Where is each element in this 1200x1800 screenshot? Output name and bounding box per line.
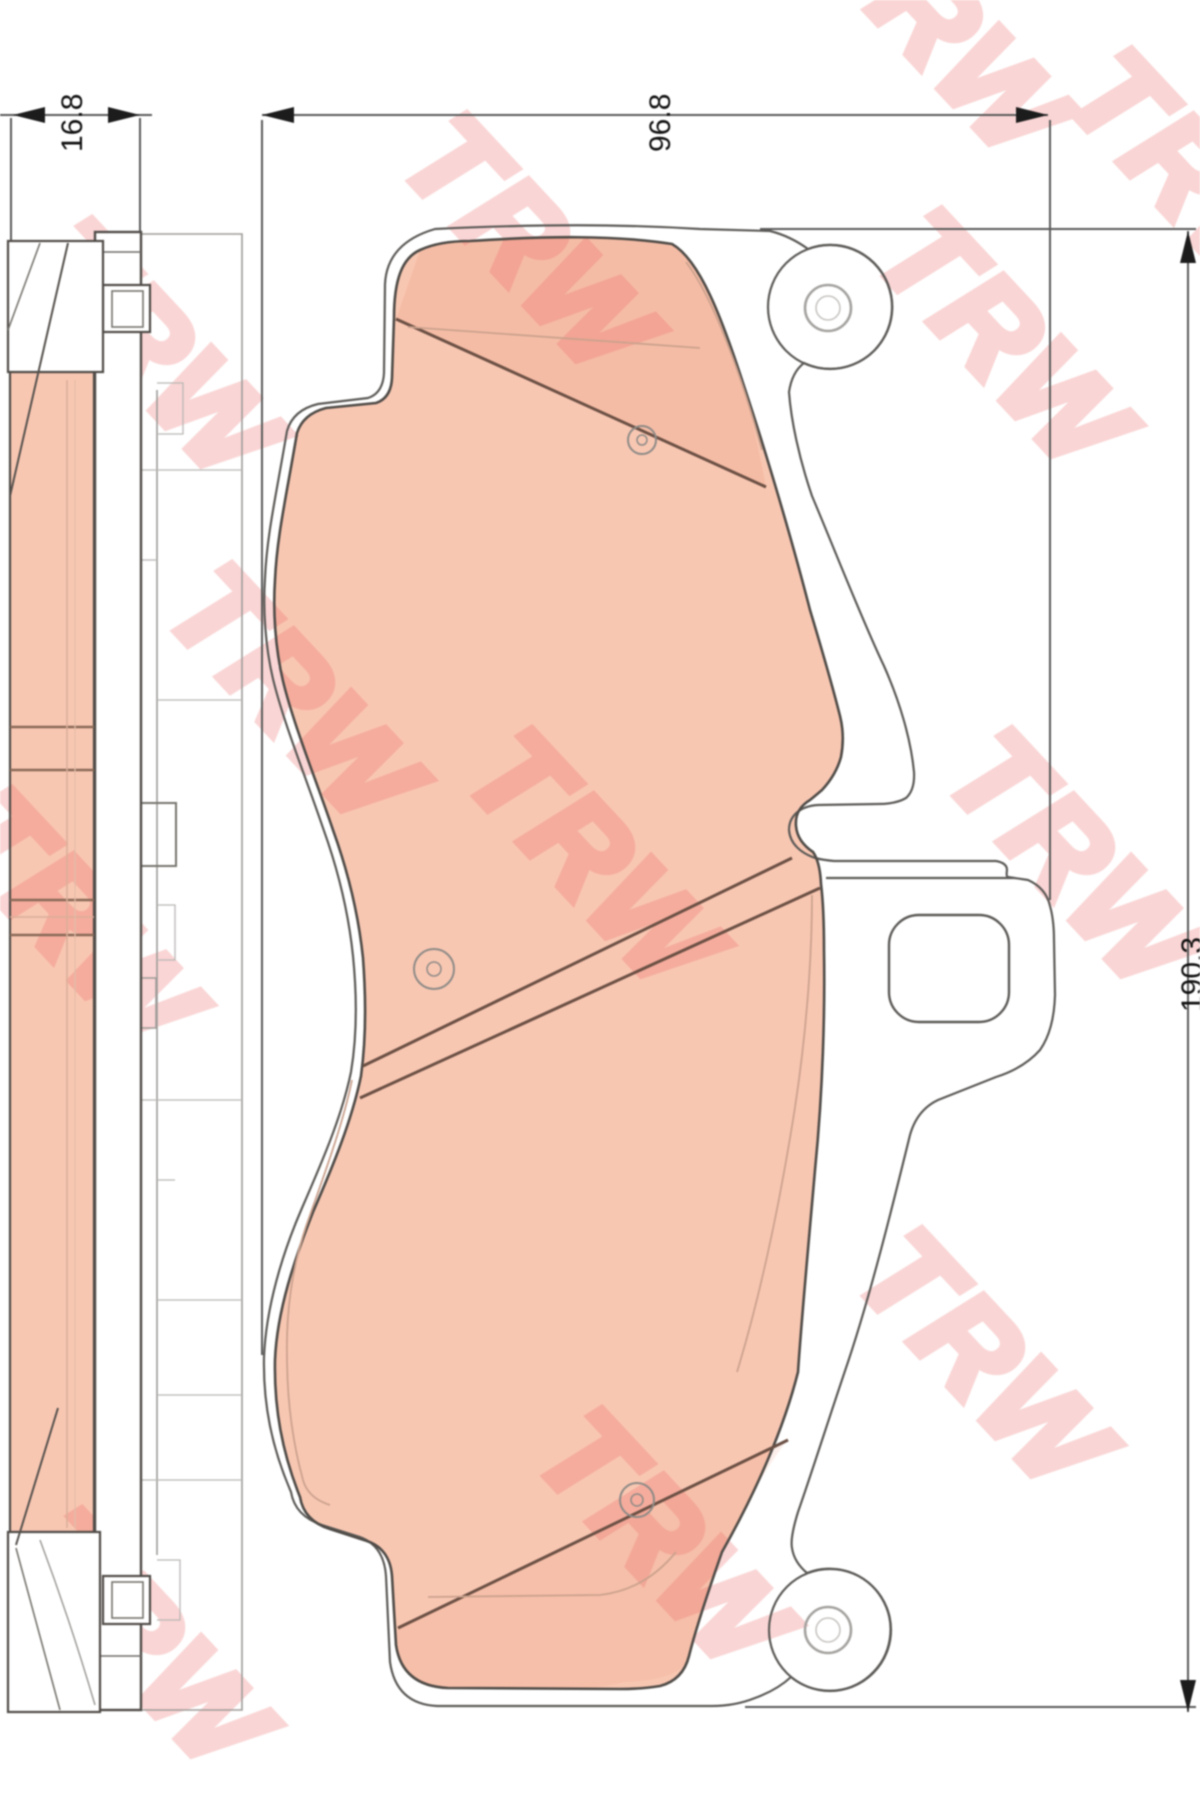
svg-text:TRW: TRW: [788, 0, 1100, 190]
svg-text:TRW: TRW: [850, 182, 1162, 502]
svg-text:16.8: 16.8: [56, 94, 89, 152]
svg-text:TRW: TRW: [830, 1202, 1142, 1522]
svg-text:96.8: 96.8: [644, 94, 677, 152]
svg-text:190.3: 190.3: [1176, 937, 1200, 1012]
svg-text:TRW: TRW: [920, 702, 1200, 1022]
